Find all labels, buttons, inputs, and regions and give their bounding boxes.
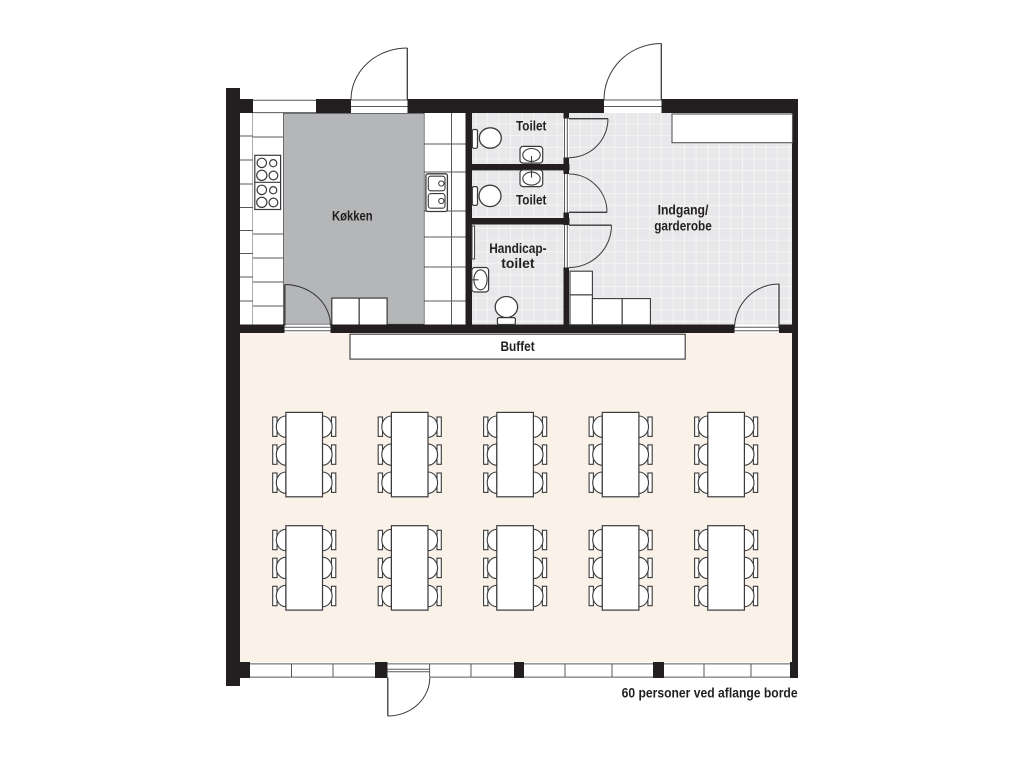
svg-text:toilet: toilet: [501, 255, 535, 271]
svg-text:Indgang/: Indgang/: [658, 202, 709, 218]
svg-text:garderobe: garderobe: [654, 217, 712, 233]
svg-text:Buffet: Buffet: [501, 338, 535, 354]
svg-text:Køkken: Køkken: [332, 207, 373, 223]
svg-text:Handicap-: Handicap-: [489, 240, 547, 256]
svg-text:Toilet: Toilet: [516, 191, 547, 207]
svg-text:60 personer ved aflange borde: 60 personer ved aflange borde: [622, 685, 798, 701]
svg-text:Toilet: Toilet: [516, 118, 547, 134]
